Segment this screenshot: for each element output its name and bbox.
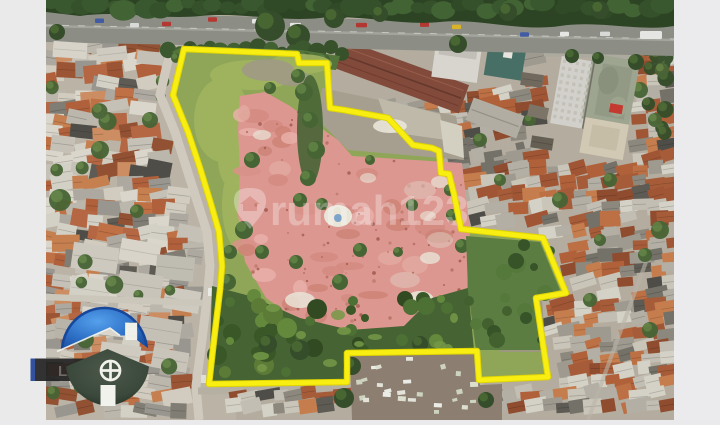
svg-text:rumah123: rumah123 xyxy=(270,187,468,234)
